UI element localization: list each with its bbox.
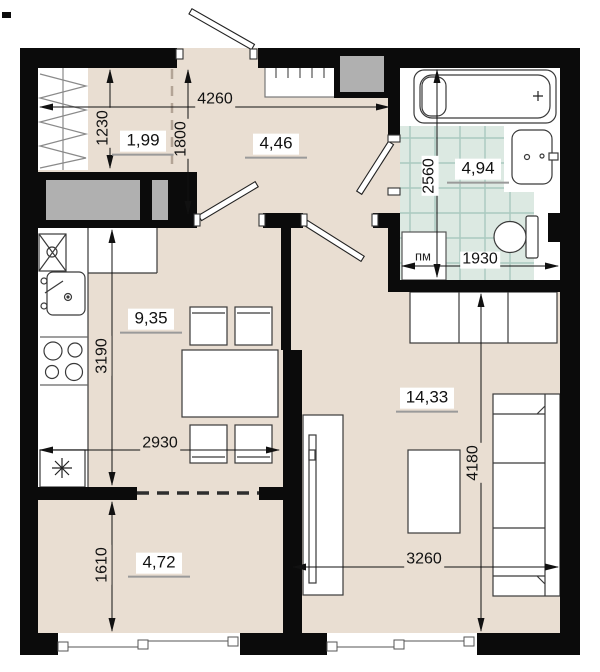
room-area-living-room: 14,33 — [396, 388, 458, 413]
sofa-icon — [493, 394, 560, 596]
area-underline — [447, 181, 509, 183]
area-underline — [245, 156, 307, 158]
kitchen-counter-top — [88, 228, 157, 273]
wash-basin-icon — [512, 130, 558, 184]
bathroom-opening — [388, 141, 400, 213]
area-underline — [396, 410, 458, 412]
shaft-icon — [340, 56, 384, 92]
floor-plan-drawing — [0, 0, 600, 672]
area-underline — [128, 575, 190, 577]
bathtub-icon — [414, 70, 556, 123]
dim-hallway-depth: 1800 — [174, 119, 191, 159]
dining-table-icon — [182, 350, 278, 417]
room-area-balcony: 4,72 — [128, 553, 190, 578]
snowflake-icon — [52, 458, 72, 478]
room-area-hallway: 4,46 — [245, 134, 307, 159]
plan-artifact — [2, 12, 11, 18]
area-underline — [120, 331, 182, 333]
tv-stand-icon — [303, 415, 343, 595]
corner-cabinet-icon — [39, 234, 66, 271]
room-area-bathroom: 4,94 — [447, 159, 509, 184]
room-area-value: 4,94 — [455, 159, 500, 180]
washing-machine-label: пм — [415, 249, 431, 264]
closet-icon — [410, 292, 557, 343]
dim-balcony-depth: 1610 — [95, 545, 112, 585]
entrance-opening — [177, 48, 258, 68]
dim-kitchen-width: 2930 — [140, 436, 180, 453]
kitchen-sink-icon — [41, 272, 85, 315]
dim-bathroom-width: 1930 — [460, 252, 500, 269]
area-underline — [112, 153, 174, 155]
window-icon — [58, 633, 240, 655]
room-area-value: 4,72 — [136, 553, 181, 574]
chair-icon — [190, 307, 227, 345]
dim-living-room-width: 3260 — [404, 552, 444, 569]
fridge-icon — [40, 450, 85, 487]
entrance-door-icon — [189, 9, 255, 50]
room-area-kitchen: 9,35 — [120, 309, 182, 334]
floor-plan: 1,99 4,46 4,94 9,35 14,33 4,72 4260 1230… — [0, 0, 600, 672]
shaft-icon — [46, 180, 140, 220]
window-icon — [327, 633, 477, 655]
room-area-value: 14,33 — [400, 388, 455, 409]
dim-hallway-width: 4260 — [195, 92, 235, 109]
coffee-table-icon — [408, 450, 460, 533]
chair-icon — [235, 307, 272, 345]
chair-icon — [190, 425, 227, 463]
dim-bathroom-depth: 2560 — [422, 156, 439, 196]
dim-kitchen-depth: 3190 — [95, 336, 112, 376]
chair-icon — [235, 425, 272, 463]
room-area-value: 1,99 — [120, 131, 165, 152]
shaft-icon — [152, 180, 168, 220]
coat-rack-icon — [265, 67, 335, 97]
dim-living-room-depth: 4180 — [466, 443, 483, 483]
room-area-wardrobe: 1,99 — [112, 131, 174, 156]
dim-wardrobe-depth: 1230 — [96, 108, 113, 148]
room-area-value: 4,46 — [253, 134, 298, 155]
room-area-value: 9,35 — [128, 309, 173, 330]
